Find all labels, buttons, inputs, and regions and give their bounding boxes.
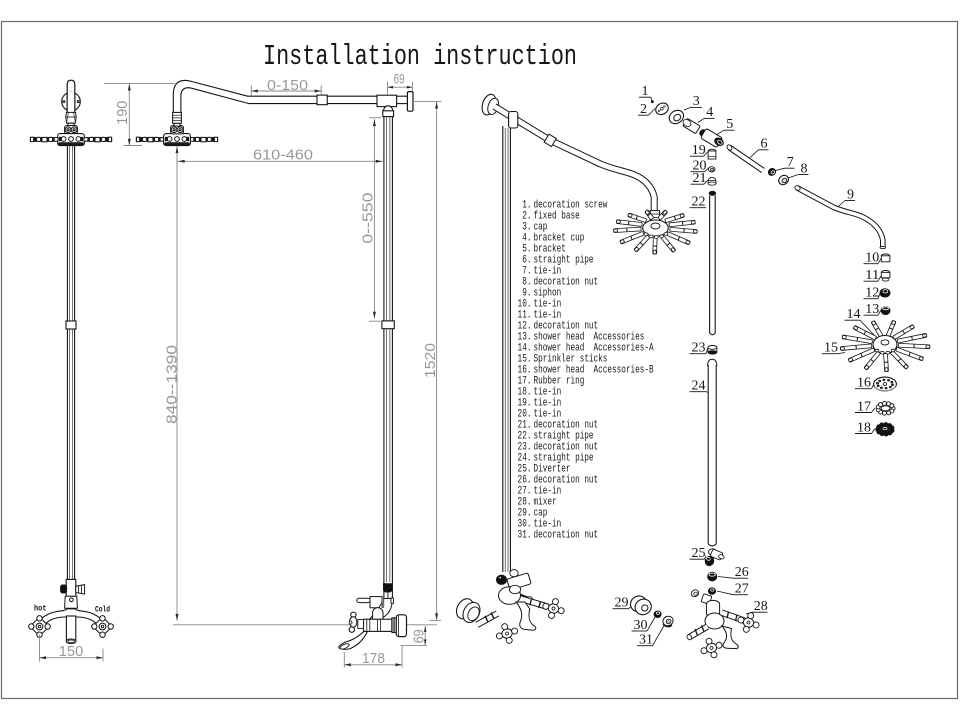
- svg-text:1520: 1520: [423, 343, 439, 378]
- svg-text:3: 3: [693, 94, 700, 109]
- svg-text:hot: hot: [34, 605, 47, 614]
- svg-text:190: 190: [115, 101, 131, 125]
- svg-text:0-150: 0-150: [267, 78, 308, 94]
- svg-text:31.: 31.: [518, 530, 532, 542]
- svg-text:69: 69: [411, 629, 427, 643]
- svg-text:610-460: 610-460: [253, 148, 313, 164]
- svg-text:0--550: 0--550: [361, 193, 377, 244]
- svg-text:decoration nut: decoration nut: [534, 530, 599, 542]
- svg-text:Cold: Cold: [95, 605, 110, 614]
- svg-text:178: 178: [362, 651, 385, 667]
- svg-text:840--1390: 840--1390: [164, 345, 180, 424]
- svg-text:Installation instruction: Installation instruction: [263, 40, 577, 73]
- svg-text:69: 69: [394, 72, 405, 87]
- svg-text:150: 150: [59, 644, 83, 660]
- svg-text:4: 4: [706, 105, 713, 120]
